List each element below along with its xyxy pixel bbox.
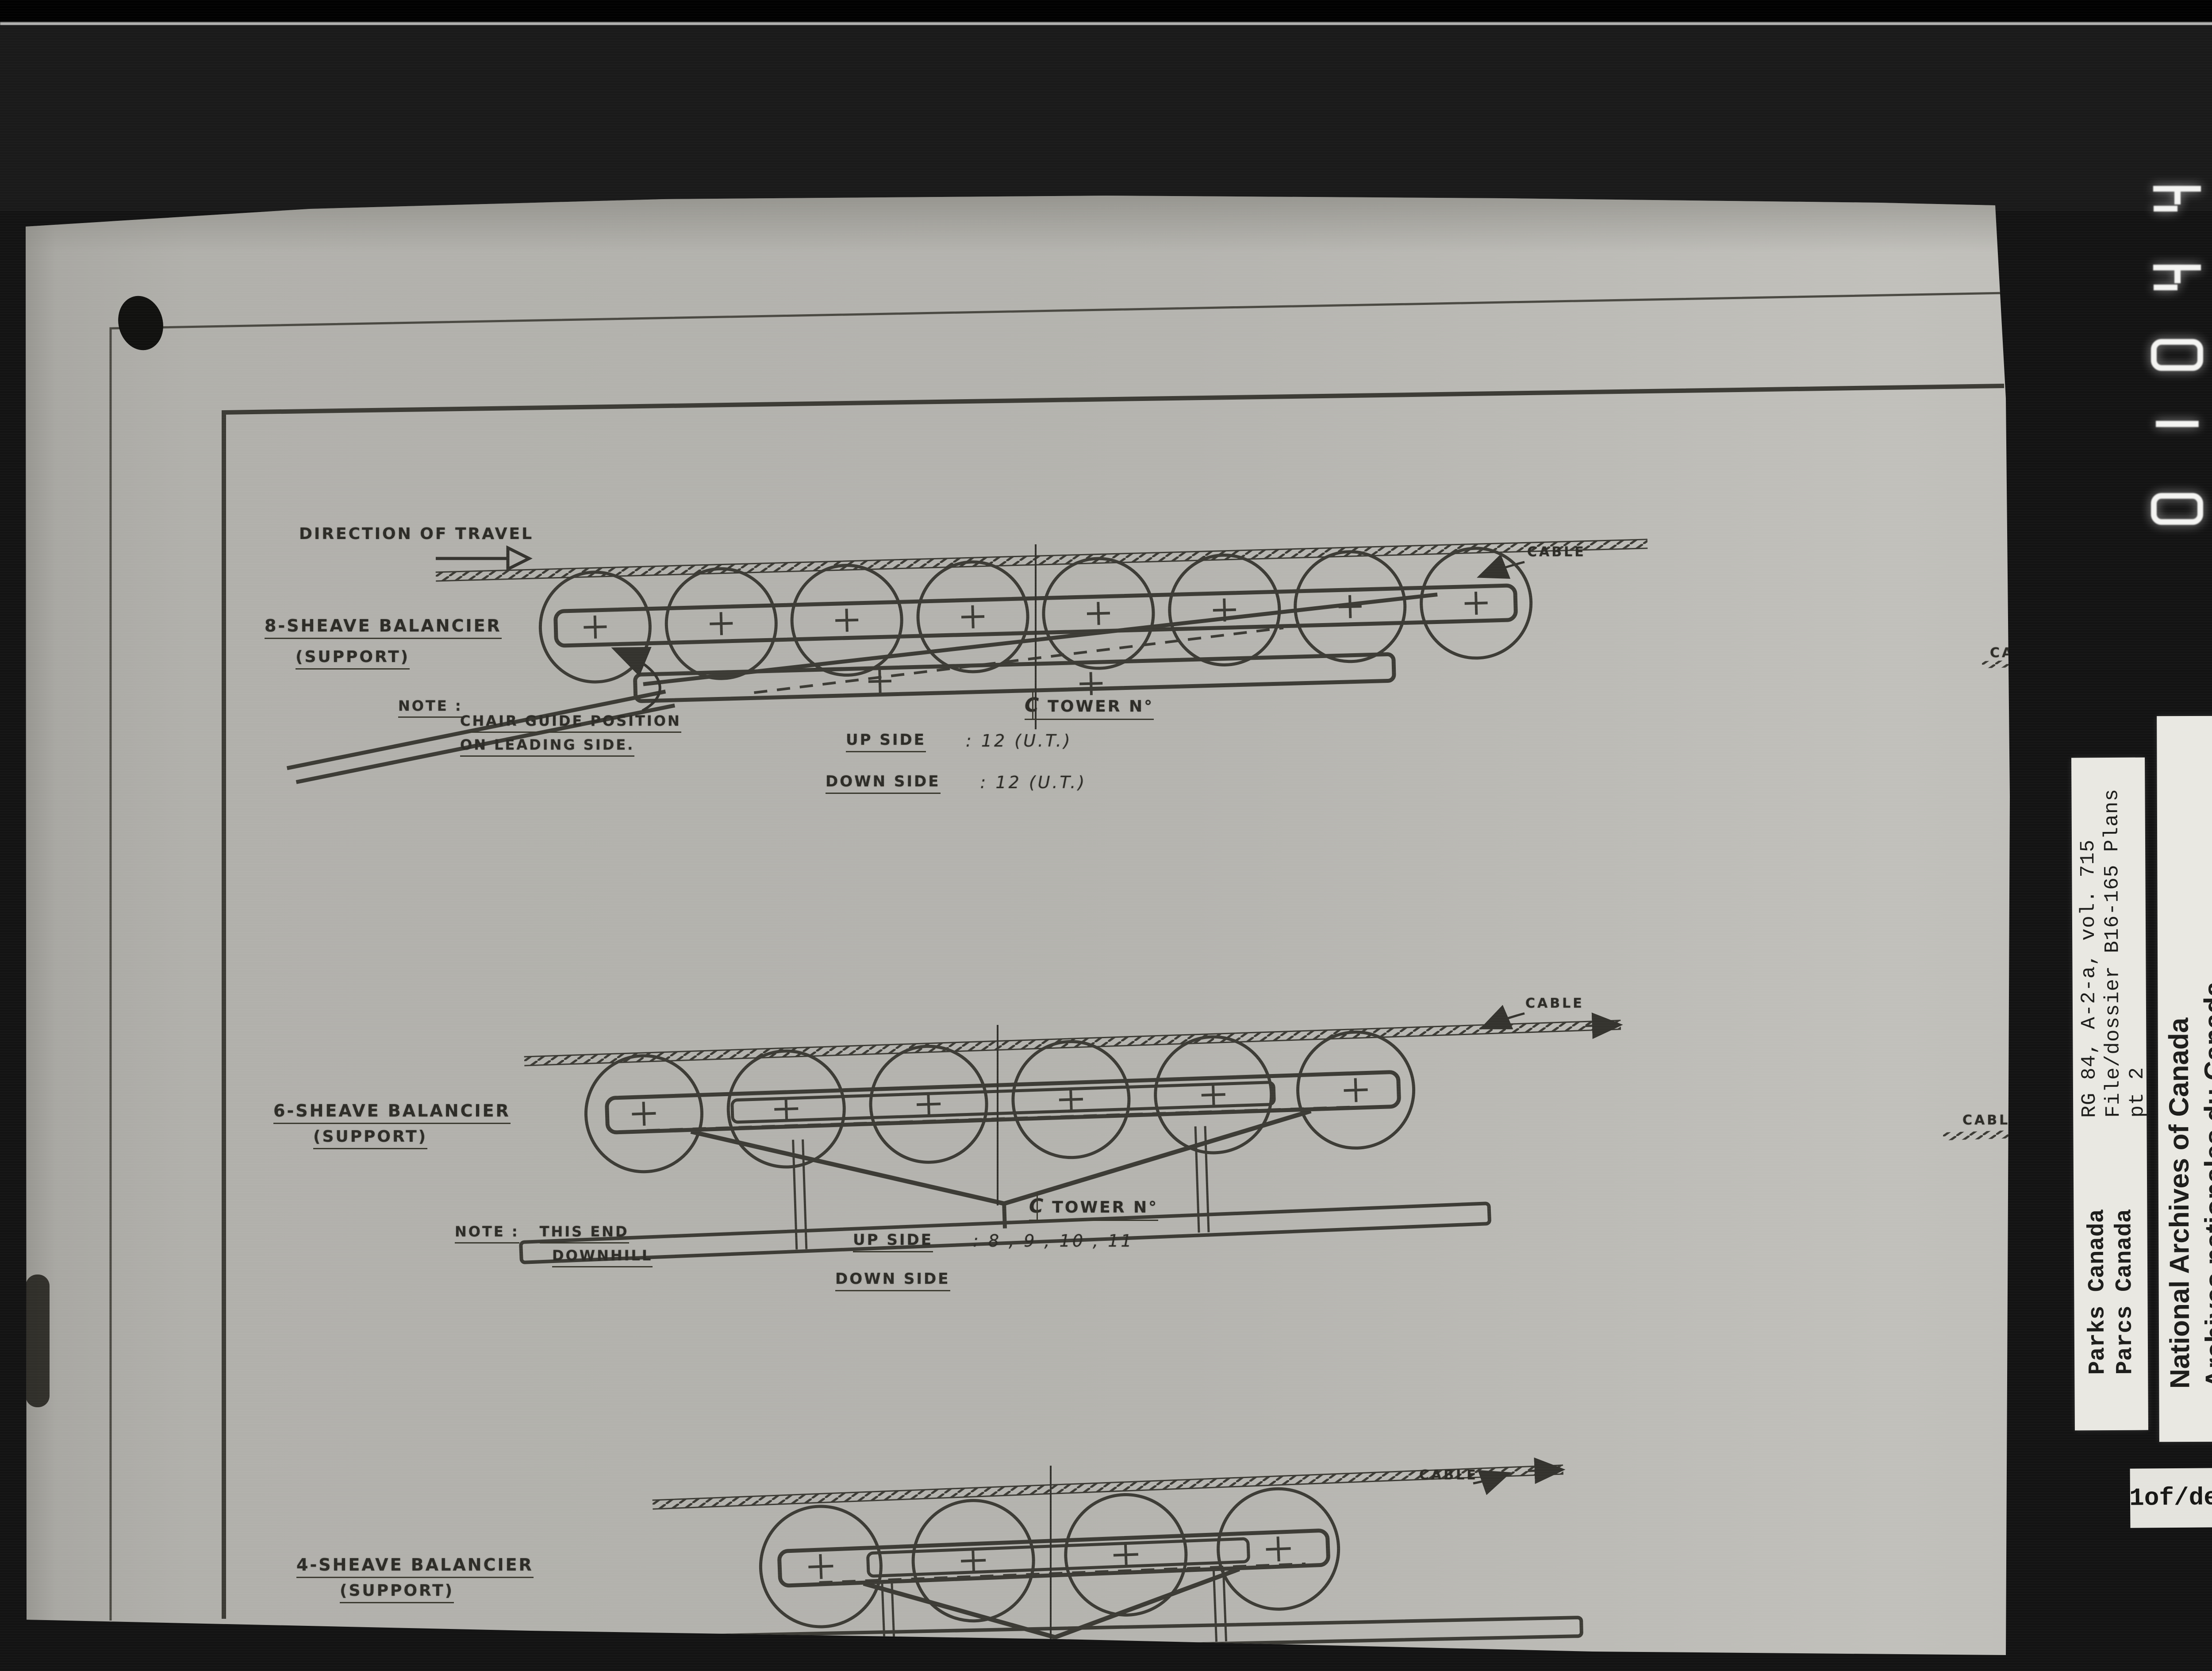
film-digit — [2151, 186, 2203, 218]
diagram2-note-row: NOTE :THIS END — [455, 1223, 629, 1244]
diagram2-subtitle: (SUPPORT) — [313, 1128, 427, 1149]
direction-of-travel-label: DIRECTION OF TRAVEL — [299, 525, 534, 543]
diagram1-up-side-row: UP SIDE: 12 (U.T.) — [846, 731, 1072, 752]
blueprint-sheet: DIRECTION OF TRAVEL 8-SHEAVE BALANCIER (… — [0, 0, 2212, 1671]
cable-label-3: CABLE — [1419, 1467, 1478, 1483]
archive-reference-text: RG 84, A-2-a, vol. 715 File/dossier B16-… — [2076, 789, 2149, 1118]
film-dark-band — [0, 25, 2212, 211]
diagram2-up-side-row: UP SIDE: 8 , 9 , 10 , 11 — [853, 1231, 1134, 1252]
cable-label-1: CABLE — [1527, 544, 1586, 560]
film-digit — [2151, 493, 2203, 525]
cable-stub-right-2 — [1943, 1130, 2014, 1140]
diagram1-note-line2: ON LEADING SIDE. — [460, 736, 634, 757]
archive-institution-strip: National Archives of Canada Archives nat… — [2157, 716, 2212, 1442]
diagram2-note-line2: DOWNHILL — [552, 1247, 653, 1267]
cable-stub-right-1 — [1982, 660, 2017, 668]
microfilm-frame: DIRECTION OF TRAVEL 8-SHEAVE BALANCIER (… — [0, 0, 2212, 1671]
film-digit — [2151, 409, 2203, 441]
punch-hole — [112, 291, 169, 355]
archive-reference-strip: RG 84, A-2-a, vol. 715 File/dossier B16-… — [2071, 758, 2148, 1431]
diagram1-down-side-row: DOWN SIDE: 12 (U.T.) — [826, 773, 1087, 794]
diagram1-note-line1: CHAIR GUIDE POSITION — [460, 712, 681, 733]
film-digit — [2151, 339, 2203, 371]
cable-label-2: CABLE — [1525, 996, 1584, 1011]
centerline-symbol: C — [1025, 694, 1041, 716]
diagram1-subtitle: (SUPPORT) — [296, 648, 410, 670]
page-number-tag: 1of/de — [2130, 1468, 2212, 1528]
archive-agency-text: Parks Canada Parcs Canada — [2083, 1209, 2139, 1375]
diagram2-title: 6-SHEAVE BALANCIER — [273, 1101, 511, 1124]
base-beam-3 — [568, 1617, 1582, 1657]
cable-label-clipped-1: CABLE — [1990, 645, 2049, 661]
diagram3-title: 4-SHEAVE BALANCIER — [296, 1555, 534, 1578]
technical-drawing — [0, 0, 2212, 1671]
direction-arrow — [436, 548, 529, 569]
film-edge-band — [0, 0, 2212, 22]
centerline-symbol: C — [1029, 1195, 1045, 1217]
diagram2-tower-label: CTOWER N° — [1029, 1195, 1158, 1221]
cable-label-clipped-2: CABLE — [1962, 1113, 2021, 1128]
cable-1 — [436, 539, 1648, 581]
archive-institution-text: National Archives of Canada Archives nat… — [2161, 982, 2212, 1389]
diagram3-subtitle: (SUPPORT) — [340, 1582, 454, 1603]
diagram1-title: 8-SHEAVE BALANCIER — [265, 616, 502, 639]
border-line-outer — [111, 293, 2004, 1621]
diagram2-down-side-row: DOWN SIDE — [835, 1270, 990, 1291]
diagram1-note-label: NOTE : — [398, 697, 463, 718]
film-digit — [2151, 265, 2203, 296]
film-counter-digits — [2151, 186, 2203, 525]
film-edge-glint — [0, 22, 2212, 25]
diagram1-tower-label: CTOWER N° — [1025, 694, 1154, 720]
